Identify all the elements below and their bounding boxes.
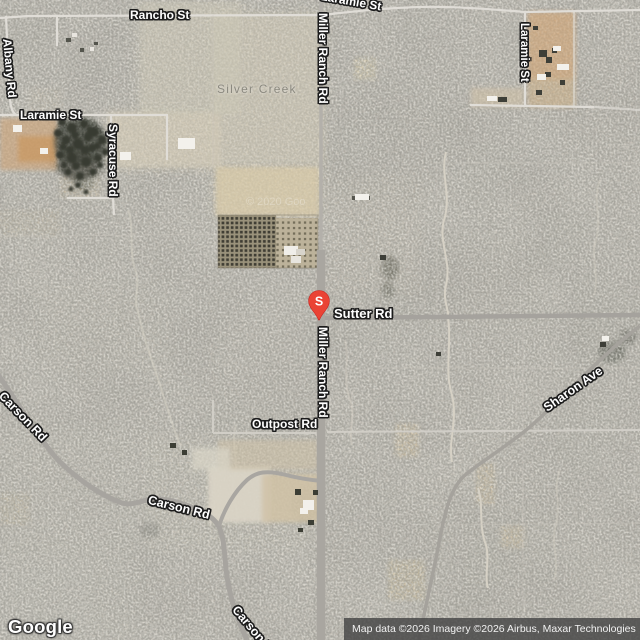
- svg-text:© 2020 Goo: © 2020 Goo: [246, 196, 305, 208]
- svg-text:S: S: [315, 295, 323, 309]
